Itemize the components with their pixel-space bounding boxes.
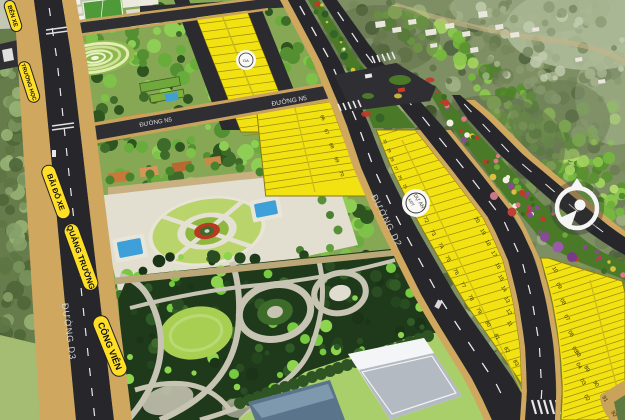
svg-text:DA: DA xyxy=(243,58,249,63)
